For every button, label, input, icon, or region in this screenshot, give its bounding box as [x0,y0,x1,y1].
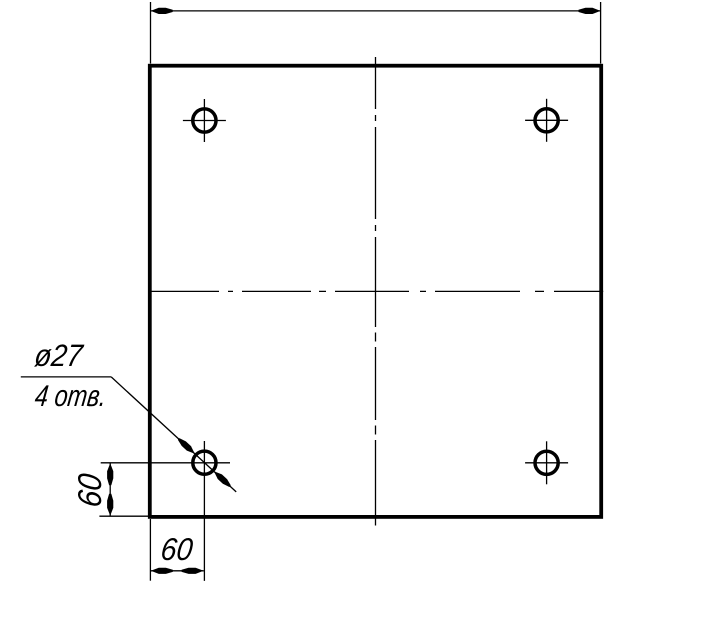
svg-text:60: 60 [72,471,109,509]
svg-text:ø27: ø27 [33,338,86,373]
svg-text:4 отв.: 4 отв. [33,380,108,413]
svg-text:60: 60 [159,531,195,567]
